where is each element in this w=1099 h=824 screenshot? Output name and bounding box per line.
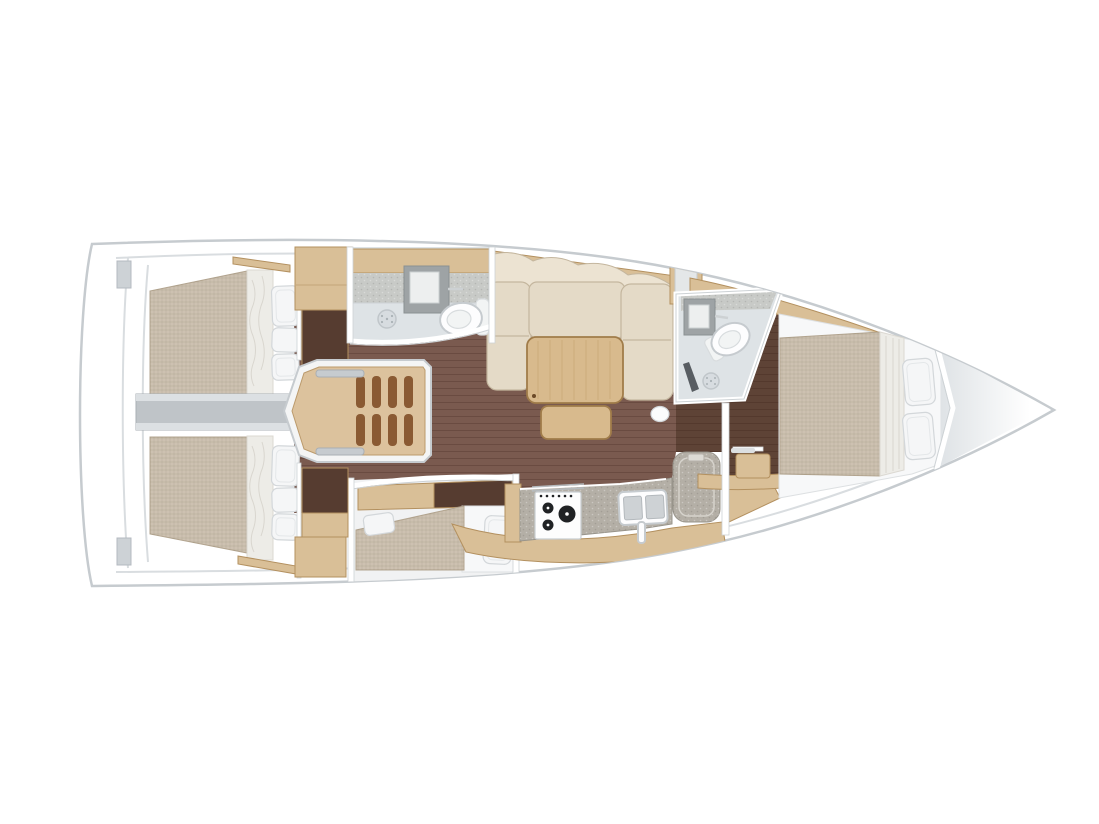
saloon-table [527,337,623,403]
fwd-bed-linen [880,332,904,476]
fwd-cabin-door-wall [722,403,729,535]
wardrobe-top-cabinet [295,247,352,310]
aft-head-sink-basin [410,272,439,303]
fridge-latch [688,454,704,461]
wardrobe-top-opening [302,310,348,366]
galley-faucet [638,522,645,543]
stern-step-port [117,261,131,288]
aft-head-left-wall [347,247,353,343]
fwd-vanity-seat [736,454,770,478]
engine-beam-bottom-edge [136,423,290,430]
grab-rail-bottom [316,448,364,455]
third-cabin-left-wall [348,478,354,584]
companionway-stairs [284,360,431,462]
third-cabin [348,474,519,586]
sofa-seat-right [621,284,673,400]
saloon-pouf [651,407,669,422]
stern-step-starboard [117,538,131,565]
engine-beam-top-edge [136,394,290,401]
yacht-floorplan [0,0,1099,824]
wardrobe-bottom-opening [302,468,348,513]
bow-shading [941,350,1050,466]
fwd-pillow-2 [902,412,936,460]
bow-locker [934,345,1050,469]
stove-burner-cap2 [547,524,550,527]
wardrobe-bottom-front [302,513,348,537]
third-cabin-locker-opening [434,480,512,508]
fwd-mattress-weave [780,332,880,476]
aft-port-pillow-2 [272,328,300,353]
galley-sink [618,490,668,525]
sofa-seat-center [529,282,625,338]
aft-head-right-wall [489,247,495,343]
table-leg-knob [532,394,536,398]
floorplan-svg [0,0,1099,824]
aft-stbd-pillow-2 [272,488,300,513]
fwd-pillow-1 [902,358,936,406]
fwd-door-handle [731,448,755,453]
stove-burner-cap3 [565,512,569,516]
seat-locker [295,537,346,577]
grab-rail-top [316,370,364,377]
fwd-head-sink-basin [689,305,709,328]
galley-end-panel [505,484,521,542]
aft-port-mattress-weave [150,271,247,395]
third-cabin-pillow-small [363,512,395,536]
saloon-bench [541,406,611,439]
aft-stbd-mattress-weave [150,437,247,553]
engine-beam [136,394,290,430]
stove-burner-cap [547,507,550,510]
aft-head [347,247,495,345]
